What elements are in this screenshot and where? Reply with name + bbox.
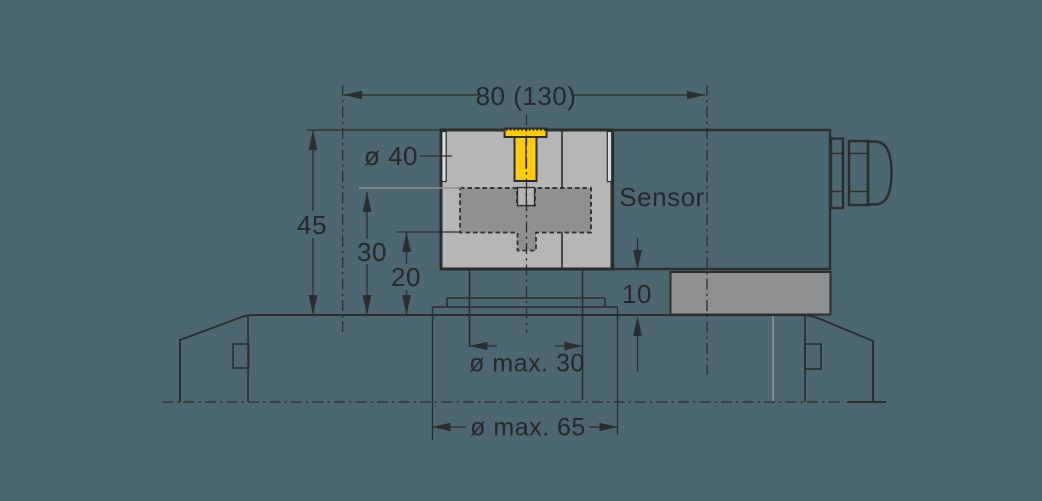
- arrow-up: [402, 232, 411, 252]
- dim-max-30-label: ø max. 30: [469, 352, 585, 377]
- dim-width-label: 80 (130): [476, 83, 577, 109]
- dim-height-30-label: 30: [357, 239, 387, 265]
- cable-gland: [831, 139, 892, 209]
- gland-nut-1: [831, 139, 843, 209]
- arrow-left: [344, 91, 362, 100]
- bed-right-profile: [805, 315, 873, 402]
- arrow-up: [309, 130, 318, 150]
- arrow-up: [633, 316, 642, 336]
- dim-diameter-40-label: ø 40: [364, 143, 418, 169]
- arrow-down: [633, 250, 642, 270]
- arrow-up: [363, 192, 372, 212]
- mounting-strip: [671, 272, 831, 315]
- bed-right-notch: [805, 344, 821, 369]
- dim-height-20-label: 20: [391, 264, 421, 290]
- dim-height-45-label: 45: [297, 212, 327, 238]
- arrow-right: [687, 91, 705, 100]
- block-slot-right: [607, 132, 611, 182]
- bed-left-notch: [233, 344, 249, 368]
- sensor-label: Sensor: [619, 184, 704, 210]
- arrow-down: [402, 295, 411, 315]
- arrow-left: [433, 423, 451, 431]
- technical-drawing: 80 (130) ø 40 45 30 20 Sensor 10 ø max. …: [0, 0, 1042, 501]
- arrow-right: [600, 423, 618, 431]
- gland-dome: [868, 142, 892, 205]
- dim-offset-10-label: 10: [622, 281, 652, 307]
- arrow-down: [363, 295, 372, 315]
- dim-max-65-label: ø max. 65: [470, 416, 586, 441]
- gland-nut-2: [849, 141, 868, 205]
- arrow-down: [309, 295, 318, 315]
